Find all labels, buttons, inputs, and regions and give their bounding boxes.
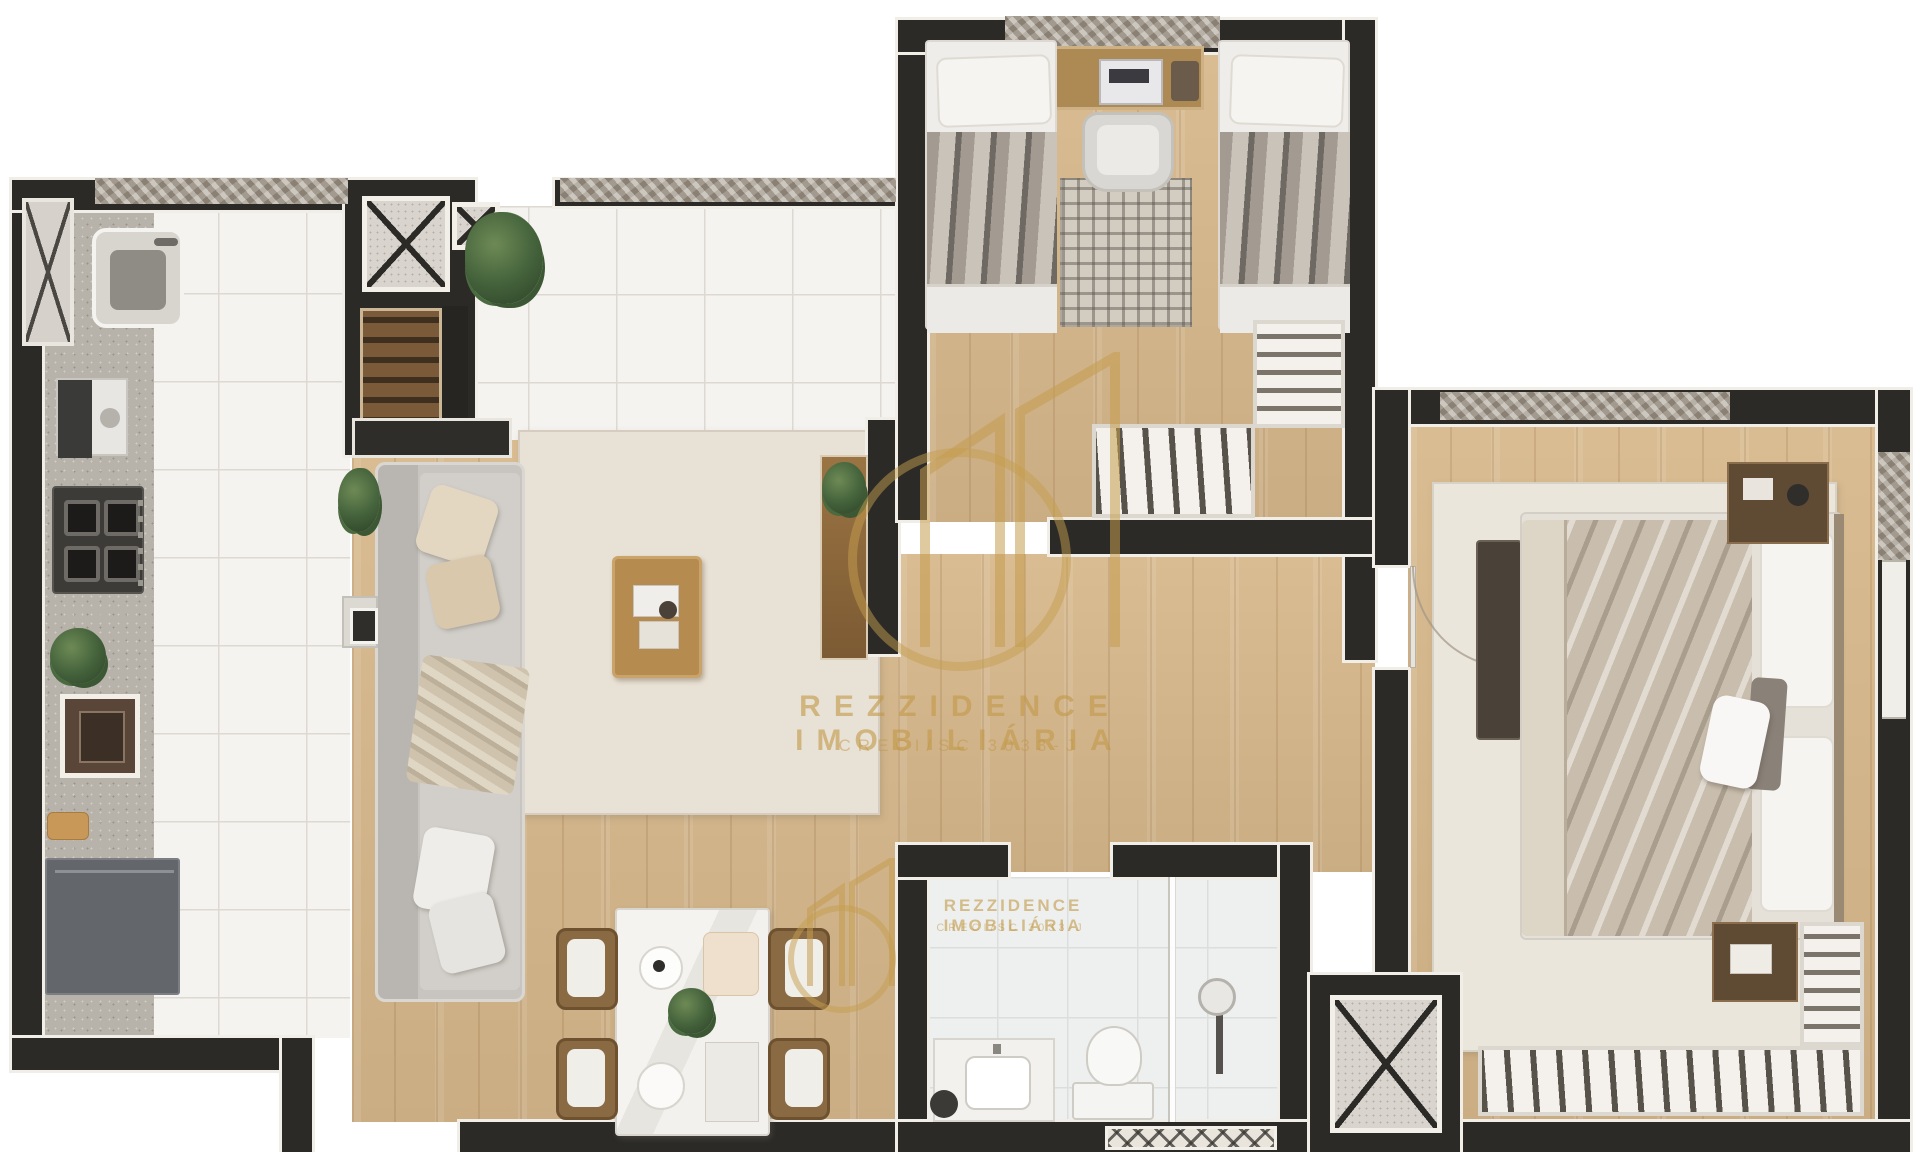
coffee-machine — [56, 378, 128, 456]
master-side-window — [1882, 560, 1906, 719]
kitchen-window-sill — [95, 178, 348, 204]
master-closet-shelves — [1800, 922, 1864, 1046]
coffee-table — [612, 556, 702, 678]
wall-master-left-upper — [1375, 390, 1408, 565]
sideboard-plant — [822, 462, 866, 514]
twin-bed-right — [1218, 40, 1350, 330]
master-wardrobe — [1478, 1046, 1864, 1116]
coffee-machine-cup — [100, 408, 120, 428]
vanity-faucet — [993, 1044, 1001, 1054]
burner — [64, 500, 100, 536]
bed-pillow — [1229, 54, 1345, 128]
burner — [104, 500, 140, 536]
bed-pillow — [936, 54, 1052, 128]
burner — [64, 546, 100, 582]
desk-chair-seat — [1097, 125, 1159, 175]
sink-basin — [110, 250, 166, 310]
duvet-fold — [1522, 520, 1567, 936]
cooktop-knobs — [138, 498, 143, 586]
twin-bedroom-rug — [1060, 178, 1192, 327]
watermark-registration-text: CRECI/SC 3033-J — [760, 736, 1160, 756]
bed-foot-fold — [927, 284, 1057, 333]
sofa-throw-blanket — [406, 654, 531, 796]
wall-bathroom-right — [1280, 845, 1310, 1152]
watermark-secondary-registration-text: CRECI/SC 3033-J — [916, 922, 1106, 934]
master-corner-sill — [1878, 452, 1910, 560]
cutting-board — [47, 812, 89, 840]
wall-bathroom-top-right — [1113, 845, 1280, 877]
wall-bathroom-top-left — [898, 845, 1008, 877]
shower-head — [1198, 978, 1236, 1016]
refrigerator-seam — [55, 870, 174, 873]
laptop-screen — [1109, 69, 1149, 83]
kitchen-sink — [92, 228, 184, 328]
side-table — [342, 596, 378, 648]
terrace-window-sill — [560, 178, 896, 202]
coffee-table-bowl — [659, 601, 677, 619]
bed-end-bench — [1476, 540, 1522, 740]
elevator-x-icon — [362, 196, 450, 292]
oven-door — [79, 711, 125, 763]
watermark-logo-building-icon — [905, 352, 1135, 652]
wall-master-left-lower — [1375, 670, 1408, 982]
food-tray — [703, 932, 759, 996]
sink-faucet — [154, 238, 178, 246]
twin-bedroom-wardrobe-shelves — [1253, 320, 1345, 428]
nightstand-bottom — [1712, 922, 1798, 1002]
shower-glass-partition — [1168, 877, 1176, 1122]
laptop — [1099, 59, 1163, 105]
dining-chair — [556, 928, 618, 1010]
headboard — [1834, 514, 1844, 942]
plate-food — [653, 960, 665, 972]
dining-chair — [556, 1038, 618, 1120]
desk-chair — [1082, 112, 1174, 192]
toilet-tank — [1072, 1082, 1154, 1120]
cooktop — [52, 486, 144, 594]
bathroom-window-hatch — [1105, 1126, 1277, 1150]
dinner-plate — [639, 946, 683, 990]
nightstand-book — [1730, 944, 1772, 974]
wall-dining-left — [282, 1038, 312, 1152]
wall-bathroom-left — [898, 845, 927, 1152]
wall-kitchen-bottom — [12, 1038, 312, 1070]
twin-bed-left — [925, 40, 1057, 330]
nightstand-decor — [1743, 478, 1773, 500]
picture-frame — [350, 608, 378, 644]
hall-shelf-cabinet — [360, 308, 442, 426]
coffee-machine-body — [58, 380, 92, 458]
master-window-sill — [1440, 392, 1730, 420]
nightstand-lamp — [1787, 484, 1809, 506]
refrigerator — [45, 858, 180, 995]
kitchen-louver-window — [22, 198, 74, 346]
hall-dark-panel — [442, 306, 468, 428]
kitchen-plant — [50, 628, 106, 684]
chair-cushion — [785, 1049, 823, 1107]
bed-duvet — [1220, 132, 1350, 284]
desk — [1052, 46, 1204, 110]
chair-cushion — [567, 939, 605, 997]
floor-plan: REZZIDENCE IMOBILIÁRIA CRECI/SC 3033-J R… — [0, 0, 1920, 1152]
burner — [104, 546, 140, 582]
master-double-bed — [1520, 512, 1842, 940]
dining-chair — [768, 1038, 830, 1120]
dinner-plate — [637, 1062, 685, 1110]
tv-console — [352, 418, 512, 458]
vanity-basin — [965, 1056, 1031, 1110]
table-runner — [705, 1042, 759, 1122]
desk-accessory — [1171, 61, 1199, 101]
utility-shaft-x-icon — [1330, 995, 1442, 1133]
dining-centerpiece-plant — [668, 988, 714, 1034]
toilet-bowl — [1086, 1026, 1142, 1086]
watermark-secondary-building-icon — [800, 858, 900, 988]
chair-cushion — [567, 1049, 605, 1107]
coffee-table-book — [639, 621, 679, 649]
nightstand-top — [1727, 462, 1829, 544]
countertop-oven — [60, 694, 140, 778]
terrace-plant — [465, 212, 543, 304]
sofa-pillow — [424, 553, 502, 631]
bed-duvet — [927, 132, 1057, 284]
sofa — [375, 462, 525, 1002]
bathroom-stool — [930, 1090, 958, 1118]
wall-master-bottom — [1460, 1122, 1910, 1152]
